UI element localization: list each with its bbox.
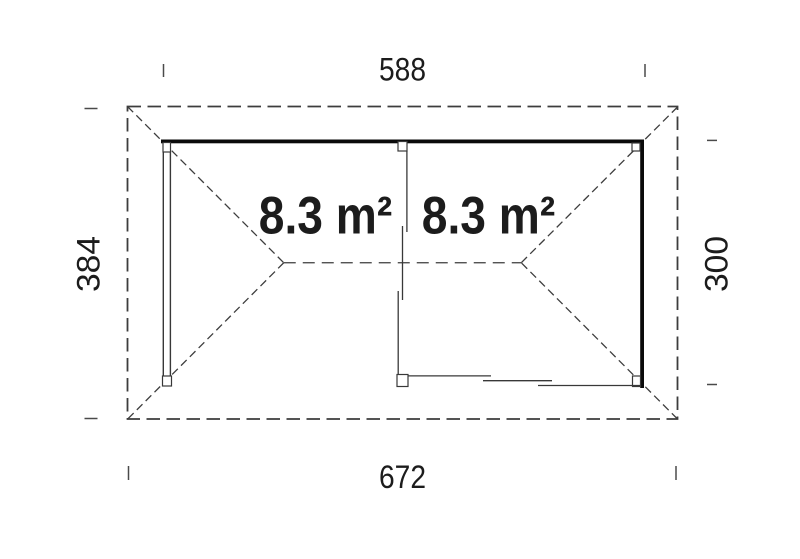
svg-text:8.3 m²: 8.3 m² <box>259 187 393 246</box>
svg-text:672: 672 <box>379 459 426 495</box>
svg-text:384: 384 <box>71 236 107 292</box>
svg-text:8.3 m²: 8.3 m² <box>422 187 556 246</box>
svg-text:300: 300 <box>699 236 735 292</box>
svg-text:588: 588 <box>379 52 426 88</box>
